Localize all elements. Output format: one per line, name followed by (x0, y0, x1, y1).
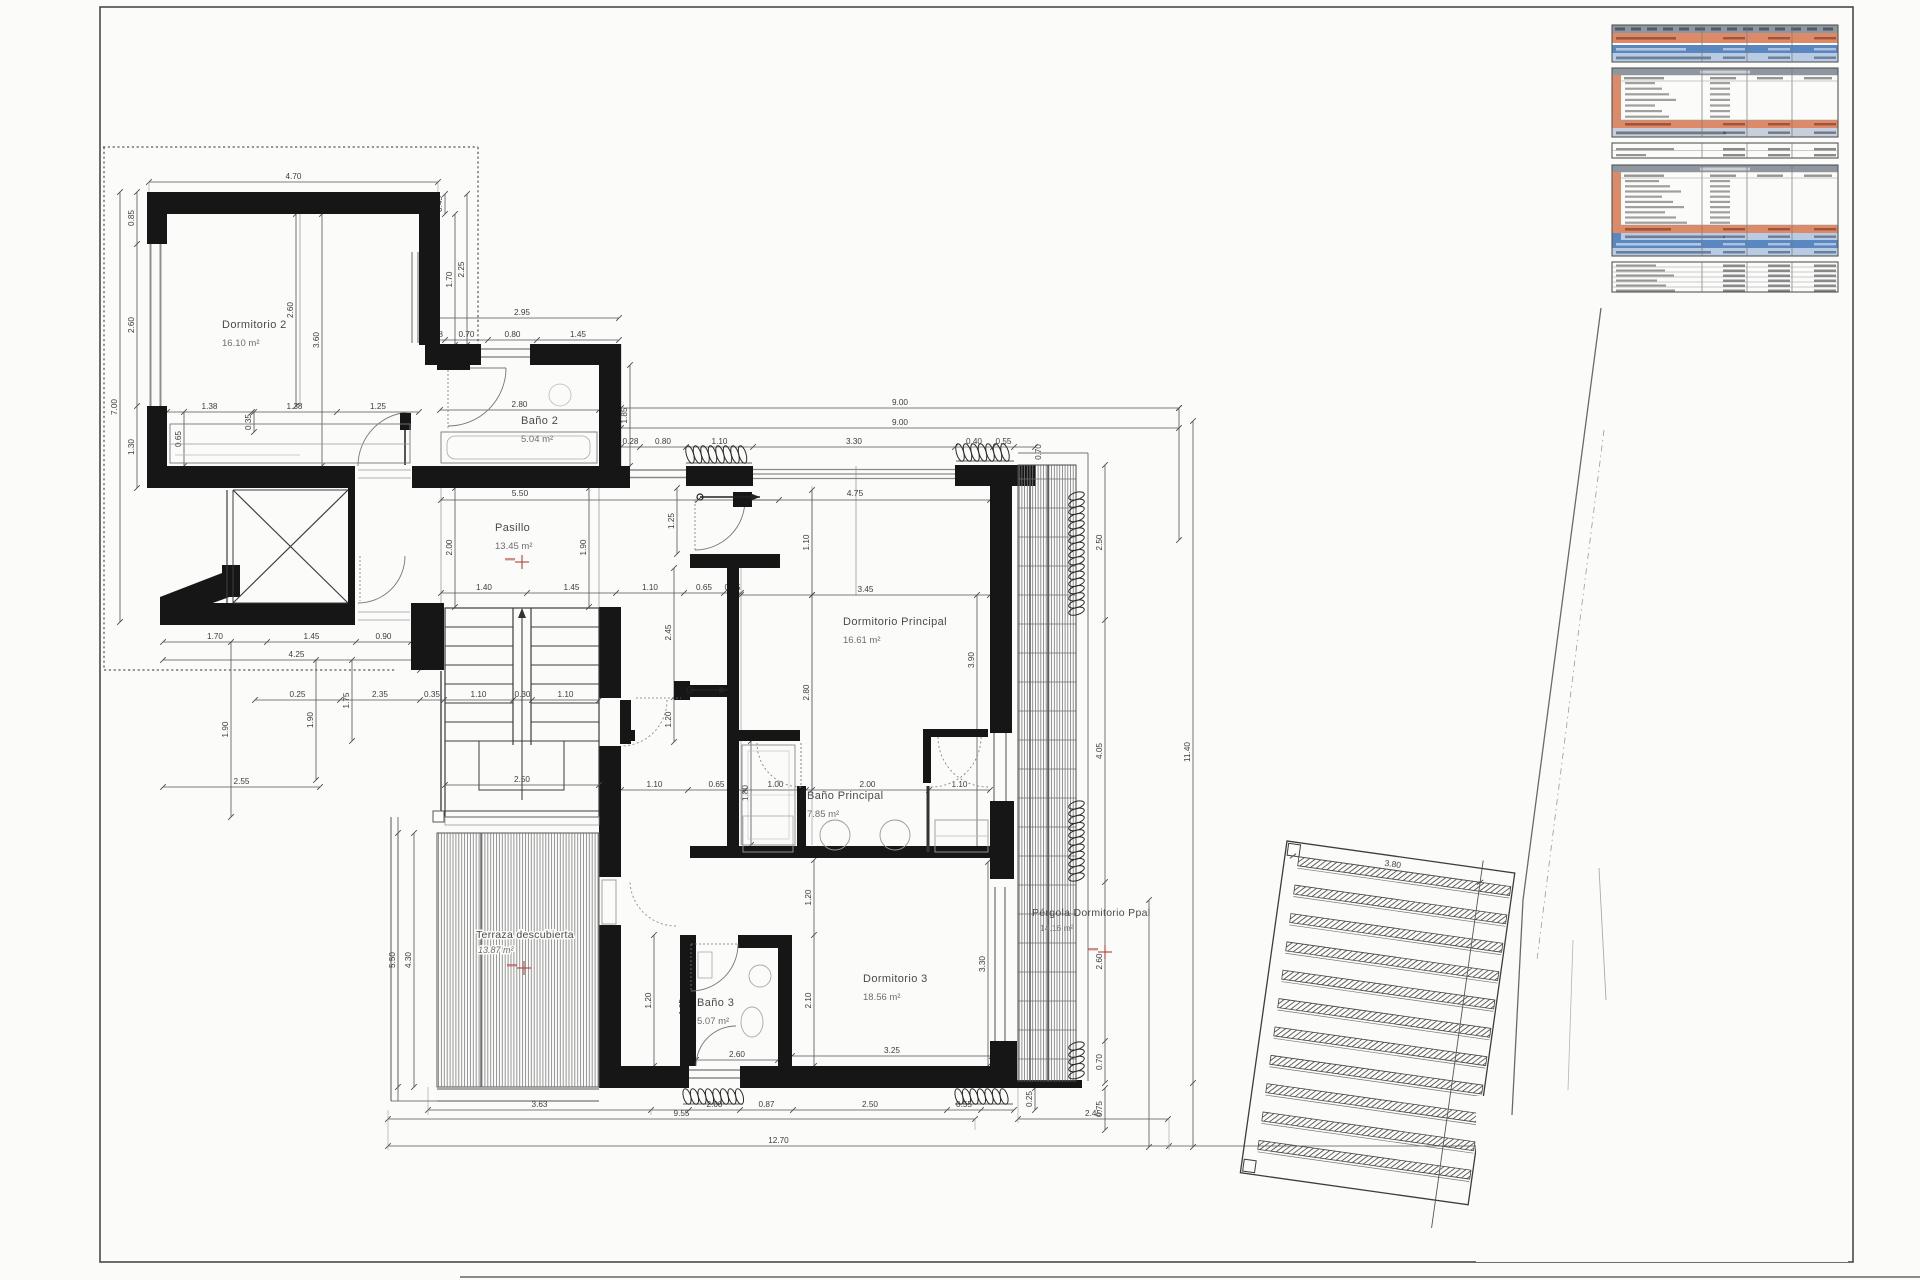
svg-text:1.10: 1.10 (471, 690, 487, 699)
svg-text:2.50: 2.50 (862, 1100, 878, 1109)
svg-text:13.87 m²: 13.87 m² (478, 945, 515, 955)
svg-text:Baño 3: Baño 3 (697, 997, 734, 1009)
svg-text:2.10: 2.10 (804, 992, 813, 1008)
svg-text:1.90: 1.90 (579, 539, 588, 555)
svg-text:7.00: 7.00 (110, 399, 119, 415)
svg-text:0.75: 0.75 (1095, 1101, 1104, 1117)
svg-text:1.20: 1.20 (644, 992, 653, 1008)
svg-text:1.38: 1.38 (287, 402, 303, 411)
svg-text:4.30: 4.30 (404, 952, 413, 968)
svg-text:2.95: 2.95 (514, 308, 530, 317)
svg-text:9.55: 9.55 (674, 1109, 690, 1118)
svg-text:2.60: 2.60 (1095, 953, 1104, 969)
svg-text:1.45: 1.45 (570, 330, 586, 339)
svg-text:4.25: 4.25 (289, 650, 305, 659)
svg-text:4.75: 4.75 (847, 488, 864, 498)
svg-text:2.00: 2.00 (860, 780, 876, 789)
svg-text:Dormitorio Principal: Dormitorio Principal (843, 616, 947, 628)
svg-text:3.25: 3.25 (884, 1046, 900, 1055)
svg-text:11.40: 11.40 (1183, 742, 1192, 762)
svg-text:2.80: 2.80 (802, 684, 811, 700)
svg-text:0.80: 0.80 (505, 330, 521, 339)
svg-text:1.20: 1.20 (804, 889, 813, 905)
svg-text:1.85: 1.85 (620, 407, 629, 423)
svg-text:0.80: 0.80 (655, 437, 671, 446)
svg-text:1.70: 1.70 (207, 632, 223, 641)
svg-text:Baño 2: Baño 2 (521, 415, 558, 427)
svg-text:1.90: 1.90 (306, 712, 315, 728)
svg-text:13.45 m²: 13.45 m² (495, 541, 533, 552)
svg-text:18.56 m²: 18.56 m² (863, 992, 901, 1003)
svg-text:1.10: 1.10 (647, 780, 663, 789)
svg-text:3.30: 3.30 (846, 437, 862, 446)
svg-text:0.25: 0.25 (290, 690, 306, 699)
svg-text:3.45: 3.45 (858, 585, 874, 594)
svg-text:1.10: 1.10 (558, 690, 574, 699)
svg-text:3.60: 3.60 (312, 332, 321, 348)
svg-text:Dormitorio 2: Dormitorio 2 (222, 319, 287, 331)
svg-text:1.40: 1.40 (476, 583, 492, 592)
svg-text:1.90: 1.90 (221, 721, 230, 737)
svg-text:0.90: 0.90 (376, 632, 392, 641)
svg-text:1.70: 1.70 (445, 271, 454, 287)
svg-text:2.60: 2.60 (729, 1050, 745, 1059)
svg-text:2.60: 2.60 (286, 302, 295, 318)
svg-text:1.75: 1.75 (342, 692, 351, 708)
svg-text:2.50: 2.50 (514, 775, 530, 784)
svg-text:0.35: 0.35 (424, 690, 440, 699)
svg-text:0.25: 0.25 (1025, 1091, 1034, 1107)
svg-text:2.35: 2.35 (372, 690, 388, 699)
svg-text:1.45: 1.45 (304, 632, 320, 641)
svg-text:1.38: 1.38 (202, 402, 218, 411)
svg-text:2.60: 2.60 (127, 317, 136, 333)
svg-text:1.25: 1.25 (370, 402, 386, 411)
svg-text:0.35: 0.35 (244, 414, 253, 430)
svg-text:3.30: 3.30 (978, 956, 987, 972)
svg-text:0.70: 0.70 (1034, 444, 1043, 460)
svg-text:5.50: 5.50 (388, 952, 397, 968)
svg-text:12.70: 12.70 (768, 1136, 789, 1145)
svg-text:0.65: 0.65 (696, 583, 712, 592)
svg-text:9.00: 9.00 (892, 418, 908, 427)
svg-text:0.28: 0.28 (623, 437, 639, 446)
svg-text:5.04 m²: 5.04 m² (521, 434, 553, 445)
svg-text:1.00: 1.00 (768, 780, 784, 789)
svg-text:2.55: 2.55 (234, 777, 250, 786)
svg-text:0.87: 0.87 (759, 1100, 775, 1109)
svg-text:Pasillo: Pasillo (495, 522, 530, 534)
svg-text:14.16 m²: 14.16 m² (1040, 923, 1074, 933)
svg-text:4.70: 4.70 (286, 172, 302, 181)
svg-text:16.10 m²: 16.10 m² (222, 338, 260, 349)
svg-text:2.50: 2.50 (1095, 534, 1104, 550)
svg-text:1.10: 1.10 (712, 437, 728, 446)
svg-text:1.30: 1.30 (127, 439, 136, 455)
svg-text:3.90: 3.90 (967, 652, 976, 668)
svg-text:0.30: 0.30 (515, 690, 531, 699)
svg-text:5.07 m²: 5.07 m² (697, 1016, 729, 1027)
svg-text:0.85: 0.85 (127, 210, 136, 226)
svg-text:1.10: 1.10 (802, 534, 811, 550)
svg-text:7.85 m²: 7.85 m² (807, 809, 839, 820)
svg-text:5.50: 5.50 (512, 488, 529, 498)
svg-text:2.25: 2.25 (457, 261, 466, 277)
svg-text:4.05: 4.05 (1095, 743, 1104, 759)
svg-text:0.65: 0.65 (174, 431, 183, 447)
svg-text:2.00: 2.00 (445, 539, 454, 555)
svg-text:1.10: 1.10 (642, 583, 658, 592)
svg-text:2.80: 2.80 (512, 400, 528, 409)
svg-text:0.55: 0.55 (996, 437, 1012, 446)
svg-text:1.45: 1.45 (564, 583, 580, 592)
svg-text:Dormitorio 3: Dormitorio 3 (863, 973, 928, 985)
svg-text:0.65: 0.65 (709, 780, 725, 789)
svg-text:Baño Principal: Baño Principal (807, 790, 884, 802)
svg-text:0.70: 0.70 (459, 330, 475, 339)
svg-text:0.70: 0.70 (1095, 1054, 1104, 1070)
svg-text:1.25: 1.25 (667, 513, 676, 529)
svg-text:16.61 m²: 16.61 m² (843, 635, 881, 646)
svg-text:Pérgola Dormitorio Ppal: Pérgola Dormitorio Ppal (1032, 907, 1150, 919)
svg-text:Terraza descubierta: Terraza descubierta (476, 929, 574, 941)
svg-text:2.45: 2.45 (664, 624, 673, 640)
svg-text:9.00: 9.00 (892, 398, 908, 407)
